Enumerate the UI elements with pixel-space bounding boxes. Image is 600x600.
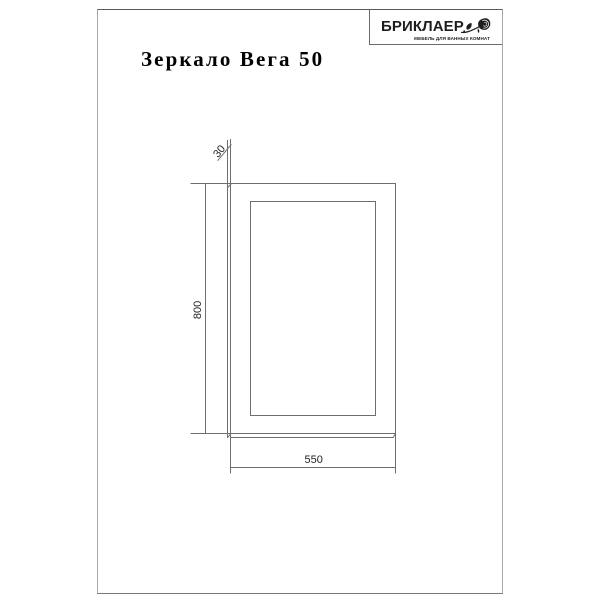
- svg-text:800: 800: [192, 301, 204, 319]
- svg-text:550: 550: [305, 454, 323, 466]
- svg-text:30: 30: [211, 143, 228, 160]
